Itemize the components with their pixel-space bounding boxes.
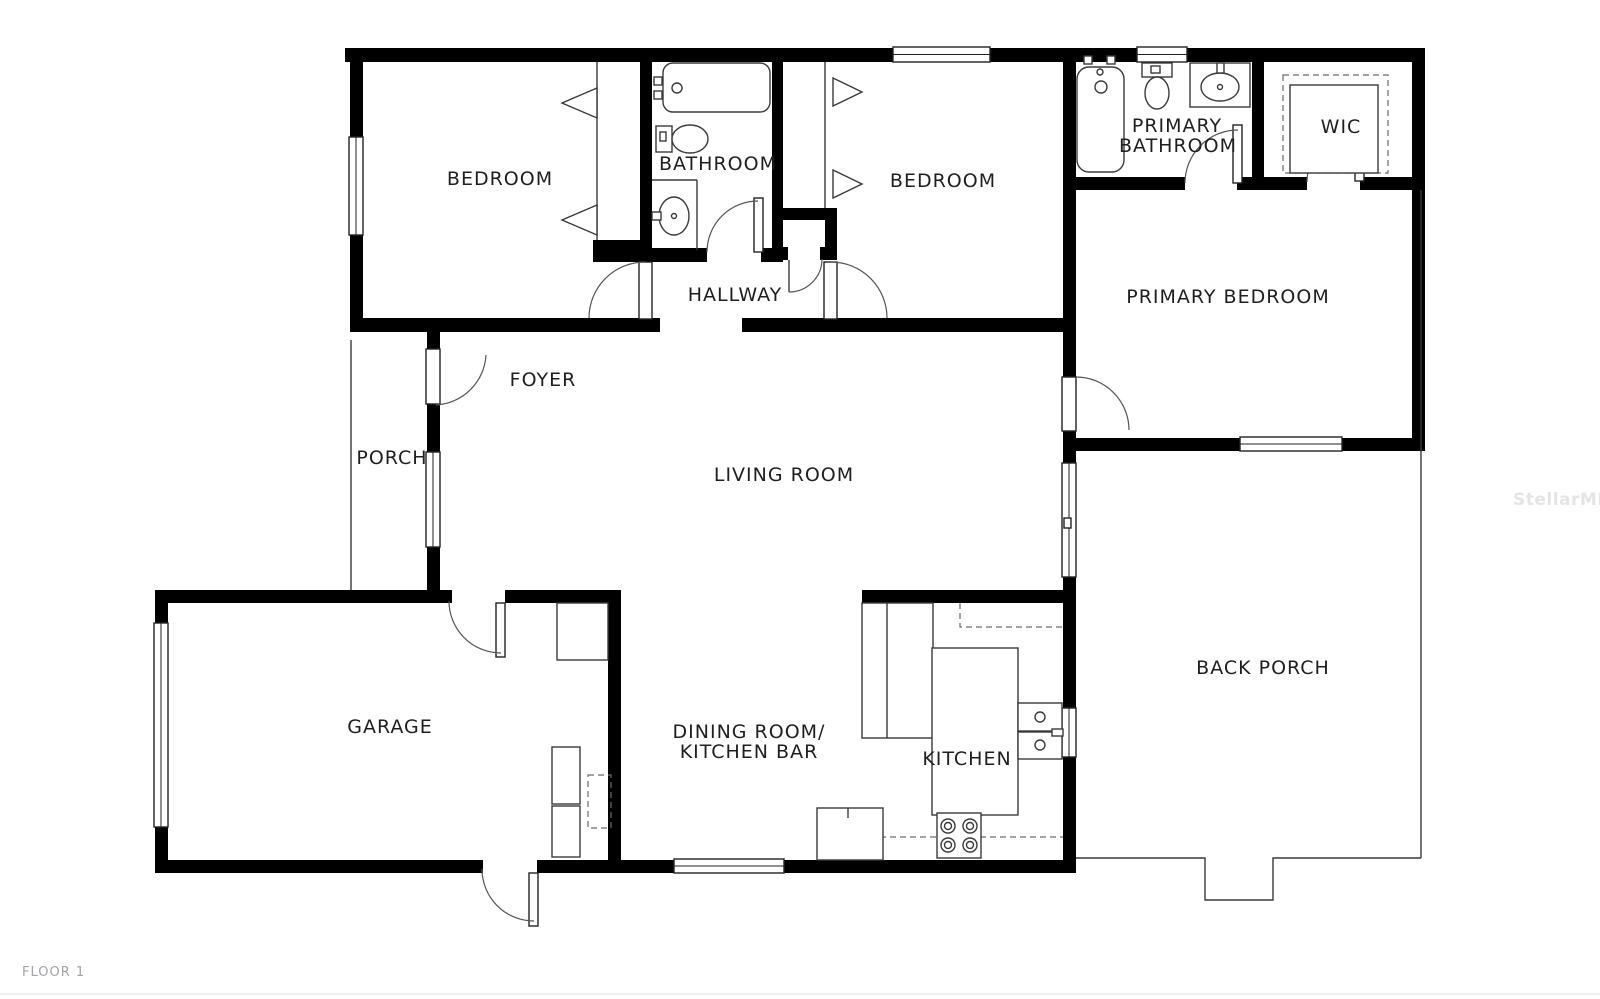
wall xyxy=(1063,757,1076,873)
window-icon xyxy=(1137,47,1187,62)
kitchen-sink-icon xyxy=(1018,703,1063,759)
bathroom-sink-icon xyxy=(1190,63,1250,107)
porch-step-icon xyxy=(1076,858,1421,900)
room-label-wic: WIC xyxy=(1321,116,1362,138)
window-icon xyxy=(349,137,363,235)
refrigerator-icon xyxy=(862,603,933,738)
wall xyxy=(820,247,825,260)
closet-rod-icon xyxy=(562,205,597,235)
wall xyxy=(1063,577,1076,708)
wall xyxy=(784,860,1076,873)
wall xyxy=(537,860,674,873)
room-label-bathroom: BATHROOM xyxy=(659,153,777,175)
room-label-garage: GARAGE xyxy=(347,716,433,738)
wall xyxy=(155,590,168,623)
closet-rod-icon xyxy=(833,78,862,106)
wall xyxy=(825,208,837,260)
floor-plan-drawing: BEDROOM BATHROOM BEDROOM PRIMARY BATHROO… xyxy=(0,0,1600,999)
toilet-icon xyxy=(1142,63,1172,109)
rear-exterior-door xyxy=(482,869,538,926)
door-swing-icon xyxy=(449,601,501,653)
closet-rod-icon xyxy=(562,88,597,118)
wall xyxy=(742,318,1076,332)
washer-dryer-icon xyxy=(552,806,580,857)
stove-icon xyxy=(937,813,981,858)
front-door xyxy=(426,349,486,405)
room-label-bedroom-left: BEDROOM xyxy=(447,168,553,190)
sliding-door-icon xyxy=(1062,463,1076,577)
wall xyxy=(1342,438,1412,451)
room-label-dining-line1: DINING ROOM/ xyxy=(673,721,826,743)
kitchen-fixtures xyxy=(817,603,1063,860)
stellar-mls-watermark: StellarMLS xyxy=(1513,490,1600,510)
garage-door-icon xyxy=(154,623,168,827)
faucet-icon xyxy=(1107,56,1115,64)
room-label-dining-line2: KITCHEN BAR xyxy=(680,741,819,763)
window-icon xyxy=(1062,708,1076,757)
room-label-foyer: FOYER xyxy=(510,369,577,391)
room-label-hallway: HALLWAY xyxy=(688,284,783,306)
wall xyxy=(350,318,660,332)
door-swing-icon xyxy=(789,259,822,292)
wall xyxy=(783,247,788,260)
door-swing-icon xyxy=(436,355,486,405)
faucet-icon xyxy=(654,77,662,85)
wall xyxy=(505,590,621,603)
garage-fixtures xyxy=(552,603,611,857)
wall xyxy=(350,48,363,137)
drain-icon xyxy=(672,83,682,93)
washer-dryer-icon xyxy=(552,747,580,804)
door-swing-icon xyxy=(589,262,645,318)
faucet-icon xyxy=(1097,69,1103,75)
linen-closet-door xyxy=(789,259,822,292)
wall xyxy=(155,860,483,873)
room-label-bedroom-middle: BEDROOM xyxy=(890,170,996,192)
primary-bedroom-door xyxy=(1062,377,1129,431)
wall xyxy=(155,590,452,603)
drain-icon xyxy=(1095,81,1107,93)
wall xyxy=(1187,48,1425,62)
bedroom-middle-door xyxy=(824,262,887,319)
faucet-icon xyxy=(1084,56,1092,64)
room-label-living-room: LIVING ROOM xyxy=(714,464,854,486)
wall xyxy=(345,48,893,62)
floor-number-label: FLOOR 1 xyxy=(22,965,85,980)
room-label-back-porch: BACK PORCH xyxy=(1196,657,1330,679)
upper-cabinet-dashed-line xyxy=(960,603,1063,627)
page-bottom-divider xyxy=(0,993,1600,995)
toilet-icon xyxy=(656,125,708,153)
door-swing-icon xyxy=(1076,377,1129,430)
room-label-primary-bathroom-line2: BATHROOM xyxy=(1119,135,1237,157)
window-icon xyxy=(1240,437,1342,451)
wall xyxy=(1063,430,1076,463)
faucet-icon xyxy=(654,91,662,99)
room-label-porch: PORCH xyxy=(356,447,427,469)
floor-plan-page: BEDROOM BATHROOM BEDROOM PRIMARY BATHROO… xyxy=(0,0,1600,999)
wall xyxy=(427,403,440,452)
wall xyxy=(427,332,440,350)
hall-bathroom-door xyxy=(707,198,763,252)
room-label-kitchen: KITCHEN xyxy=(922,748,1011,770)
bedroom-left-door xyxy=(589,262,652,319)
wall xyxy=(350,235,363,332)
garage-interior-door xyxy=(449,601,505,657)
room-label-primary-bathroom-line1: PRIMARY xyxy=(1132,115,1222,137)
water-heater-icon xyxy=(588,775,611,828)
wall xyxy=(640,248,707,262)
wall xyxy=(1252,62,1264,177)
window-icon xyxy=(893,47,990,62)
wall xyxy=(1076,438,1240,451)
door-swing-icon xyxy=(831,262,887,318)
bathroom-sink-icon xyxy=(652,180,697,250)
wall xyxy=(1063,177,1185,190)
wall xyxy=(1237,177,1307,190)
room-label-primary-bedroom: PRIMARY BEDROOM xyxy=(1126,286,1329,308)
kitchen-counter-icon xyxy=(932,648,1018,815)
wall xyxy=(862,590,1063,603)
wall xyxy=(640,62,652,248)
door-swing-icon xyxy=(707,201,758,252)
window-icon xyxy=(674,859,784,873)
wall xyxy=(1063,48,1076,377)
wall xyxy=(593,240,645,262)
wall xyxy=(783,208,825,220)
kitchen-counter-icon xyxy=(817,808,883,860)
window-icon xyxy=(426,452,440,547)
wall xyxy=(1412,48,1425,451)
wall xyxy=(427,547,440,593)
door-swing-icon xyxy=(482,869,534,921)
closet-rod-icon xyxy=(833,170,862,198)
garage-alcove-outline xyxy=(557,603,608,660)
wall xyxy=(608,590,621,873)
